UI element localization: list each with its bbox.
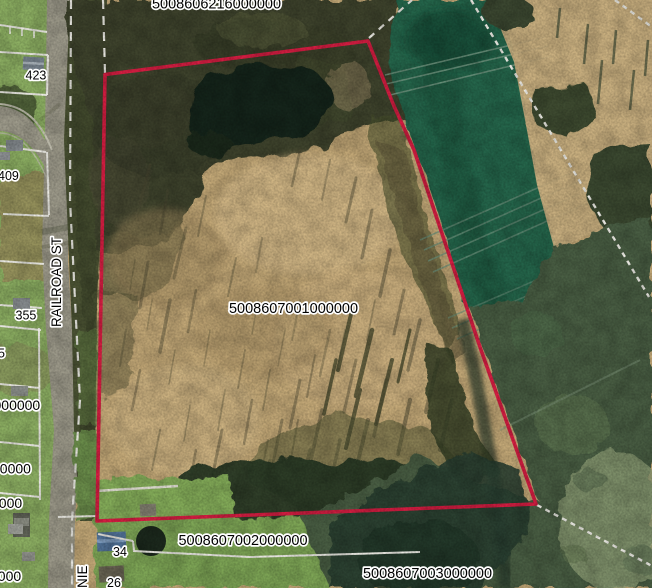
svg-text:0000: 0000 [0, 495, 22, 511]
svg-text:26: 26 [107, 576, 121, 588]
svg-text:5008607003000000: 5008607003000000 [363, 566, 492, 582]
svg-text:45: 45 [0, 347, 5, 361]
svg-text:0000: 0000 [0, 568, 21, 584]
svg-text:5008607001000000: 5008607001000000 [229, 301, 358, 317]
svg-text:000000: 000000 [0, 397, 40, 413]
svg-text:RAILROAD ST: RAILROAD ST [49, 237, 64, 327]
svg-text:00000: 00000 [0, 461, 31, 477]
svg-text:409: 409 [0, 169, 19, 183]
svg-text:5008606216000000: 5008606216000000 [152, 0, 281, 13]
svg-text:423: 423 [26, 69, 47, 83]
svg-text:NIE: NIE [75, 565, 90, 588]
svg-text:34: 34 [113, 545, 127, 559]
svg-text:355: 355 [16, 309, 37, 323]
svg-text:5008607002000000: 5008607002000000 [178, 533, 307, 549]
